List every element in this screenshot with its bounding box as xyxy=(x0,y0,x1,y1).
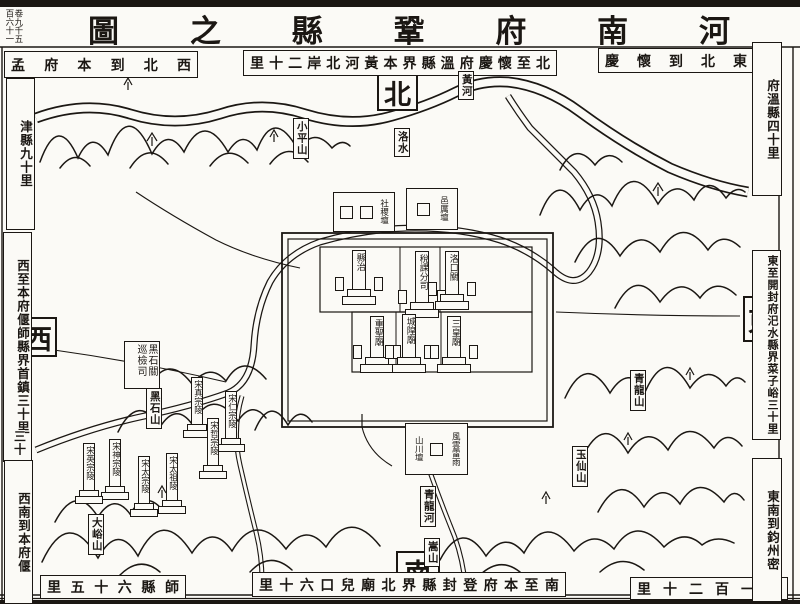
pedestal xyxy=(158,506,186,514)
altar-fengyun-label: 風雲雷雨 xyxy=(451,432,460,466)
altar-sheji: 社稷壇 xyxy=(333,192,395,232)
note-southwest: 里五十六縣師 xyxy=(40,575,186,599)
note-west-extra: 三十 xyxy=(12,430,25,456)
altar-yili-label: 邑厲壇 xyxy=(439,196,448,222)
note-southwest-vertical: 西南到本府偃 xyxy=(4,460,33,604)
note-northwest: 孟府本到北西 xyxy=(4,51,198,78)
note-north: 里十二岸北河黃本界縣溫府慶懷至北 xyxy=(243,50,557,76)
side-building xyxy=(469,345,478,359)
label-xiaoping-mountain: 小平山 xyxy=(293,118,309,159)
altar-platform xyxy=(360,206,373,219)
pedestal xyxy=(342,296,376,305)
tomb-taizong: 宋太宗陵 xyxy=(129,456,159,517)
side-building xyxy=(467,282,476,296)
pedestal xyxy=(437,364,471,373)
label-qinglong-river: 青龍河 xyxy=(420,486,436,527)
tomb-shenzong: 宋神宗陵 xyxy=(100,439,130,500)
tomb-yingzong: 宋英宗陵 xyxy=(74,443,104,504)
note-south: 里十六口兒廟北界縣封登府本至南 xyxy=(252,572,566,597)
tomb-plaque: 宋太宗陵 xyxy=(138,456,151,504)
side-building xyxy=(353,345,362,359)
pedestal xyxy=(101,492,129,500)
note-northwest-vertical: 津縣九十里 xyxy=(6,78,35,230)
pedestal xyxy=(199,471,227,479)
city-god-temple-plaque: 城隍廟 xyxy=(402,314,415,358)
tax-office-plaque: 稅課分司 xyxy=(415,251,428,303)
label-xunjiansi-office: 黑石關巡檢司 xyxy=(124,341,160,389)
county-seat-plaque: 縣治 xyxy=(352,250,365,290)
pedestal xyxy=(360,364,394,373)
label-luo-river: 洛水 xyxy=(394,128,410,157)
tomb-plaque: 宋英宗陵 xyxy=(83,443,96,491)
tomb-plaque: 宋神宗陵 xyxy=(109,439,122,487)
compound-city-god-temple: 城隍廟 xyxy=(394,314,424,373)
side-building xyxy=(428,282,437,296)
altar-platform xyxy=(430,443,443,456)
note-west: 西至本府偃師縣界首鎮三十里 xyxy=(3,232,32,462)
cardinal-north: 北 xyxy=(377,73,418,111)
side-building xyxy=(430,345,439,359)
pedestal xyxy=(130,509,158,517)
compound-luokou-pass: 洛口關 xyxy=(437,251,467,310)
label-song-mountain: 嵩山 xyxy=(424,538,440,567)
side-building xyxy=(335,277,344,291)
label-qinglong-mountain: 青龍山 xyxy=(630,370,646,411)
side-building xyxy=(374,277,383,291)
note-southeast-vertical: 東南到鈞州密 xyxy=(752,458,782,602)
label-dayu-mountain: 大峪山 xyxy=(88,514,104,555)
note-northeast: 慶懷到北東 xyxy=(598,48,754,73)
tomb-zhezong: 宋哲宗陵 xyxy=(198,418,228,479)
tomb-plaque: 宋哲宗陵 xyxy=(207,418,220,466)
side-building xyxy=(385,345,394,359)
luokou-pass-plaque: 洛口關 xyxy=(445,251,458,295)
tomb-plaque: 宋太祖陵 xyxy=(166,453,179,501)
label-yuxian-mountain: 玉仙山 xyxy=(572,446,588,487)
altar-sheji-label: 社稷壇 xyxy=(379,199,388,225)
map-page: 卷九千五百六十一 圖之縣鞏府南河 北 西 東 南 孟府本到北西 津縣九十里 里十… xyxy=(0,0,800,604)
compound-county-seat: 縣治 xyxy=(344,250,374,305)
note-east: 東至開封府汜水縣界菜子峪三十里 xyxy=(752,250,781,440)
zhongsheng-temple-plaque: 重聖廟 xyxy=(370,316,383,358)
altar-yili: 邑厲壇 xyxy=(406,188,458,230)
tomb-taizu: 宋太祖陵 xyxy=(157,453,187,514)
label-yellow-river: 黃河 xyxy=(458,71,474,100)
pedestal xyxy=(392,364,426,373)
altar-platform xyxy=(340,206,353,219)
sanhuang-temple-plaque: 三皇廟 xyxy=(447,316,460,358)
label-heishi-mountain: 黑石山 xyxy=(146,388,162,429)
altar-shanchuan-label: 山川壇 xyxy=(414,436,423,462)
pedestal xyxy=(435,301,469,310)
altar-platform xyxy=(417,203,430,216)
map-title: 圖之縣鞏府南河 xyxy=(88,10,730,46)
pedestal xyxy=(75,496,103,504)
volume-note: 卷九千五百六十一 xyxy=(4,9,22,51)
altar-shanchuan: 山川壇 風雲雷雨 xyxy=(405,423,468,475)
compound-sanhuang-temple: 三皇廟 xyxy=(439,316,469,373)
side-building xyxy=(398,290,407,304)
note-northeast-vertical: 府溫縣四十里 xyxy=(752,42,782,196)
